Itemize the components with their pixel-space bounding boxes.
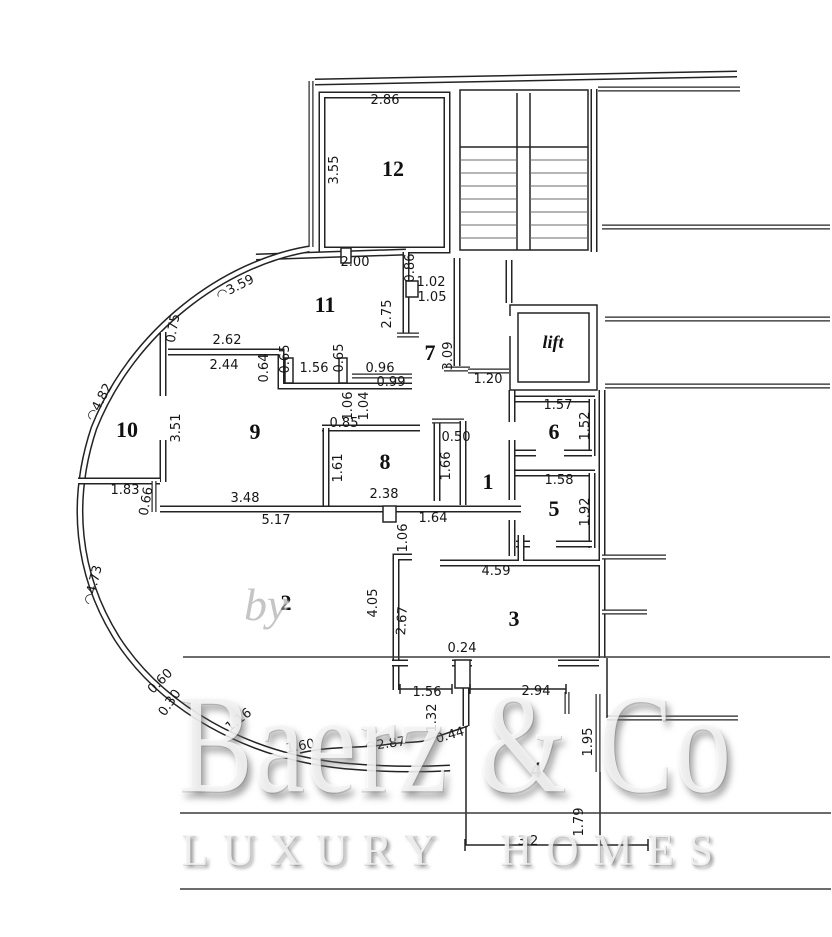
dimension-label: 2.38 (370, 487, 399, 502)
room-label: 7 (425, 340, 436, 365)
dimension-label: 3.55 (327, 156, 342, 185)
dimension-label: 3.09 (441, 342, 456, 371)
room-label: 6 (549, 419, 560, 444)
floor-plan-drawing: 2.863.552.000.861.021.05◠3.592.750.752.6… (0, 0, 832, 937)
dimension-label: 0.66 (137, 486, 157, 517)
door-gaps (163, 398, 564, 669)
dimension-label: 0.65 (332, 344, 347, 373)
floor-plan-page: 2.863.552.000.861.021.05◠3.592.750.752.6… (0, 0, 832, 937)
room-label: 3 (509, 606, 520, 631)
room-label: 9 (250, 419, 261, 444)
dimension-label: 1.64 (419, 511, 448, 526)
dimension-label: 1.20 (474, 372, 503, 387)
dimension-label: 0.85 (330, 416, 359, 431)
dimension-label: 1.52 (578, 412, 593, 441)
dimension-label: 1.95 (581, 728, 596, 757)
dimension-label: 2.86 (371, 93, 400, 108)
dimension-label: 1.56 (300, 361, 329, 376)
dimension-label: ◠4.82 (84, 381, 116, 424)
room-label: 5 (549, 496, 560, 521)
dimension-label: 1.04 (357, 392, 372, 421)
dimension-label: 1.32 (425, 704, 440, 733)
room-label: 11 (315, 292, 336, 317)
staircase (460, 90, 588, 250)
dimension-label: 2.94 (522, 684, 551, 699)
dimension-label: 1.05 (418, 290, 447, 305)
dimension-label: 1.60 (285, 737, 316, 757)
dimension-label: 0.99 (377, 375, 406, 390)
dimension-label: 1.56 (413, 685, 442, 700)
dimension-label: 2.62 (213, 333, 242, 348)
dimension-label: 3.51 (169, 414, 184, 443)
dimension-label: 1.92 (578, 498, 593, 527)
room-label: 4 (531, 757, 542, 782)
dimension-label: 1.66 (439, 452, 454, 481)
room-label: 2 (281, 590, 292, 615)
dimension-label: 2.00 (341, 255, 370, 270)
dimension-label: 2.67 (394, 606, 411, 636)
room-label: lift (543, 332, 565, 352)
room-label: 12 (382, 156, 404, 181)
dimension-label: 1.58 (545, 473, 574, 488)
dimension-label: 0.75 (164, 313, 184, 344)
dimension-label: 3.2 (518, 834, 539, 849)
room-label: 8 (380, 449, 391, 474)
dimension-label: 4.59 (482, 564, 511, 579)
dimension-label: 2.44 (210, 358, 239, 373)
dimension-label: 1.79 (572, 808, 587, 837)
dimension-label: 3.48 (231, 491, 260, 506)
dimension-label: 1.61 (331, 454, 346, 483)
dimension-label: 2.75 (380, 300, 395, 329)
room-label: 1 (483, 469, 494, 494)
dimension-label: 0.64 (257, 354, 272, 383)
dimension-label: 1.16 (223, 705, 255, 735)
dimension-label: 0.50 (442, 430, 471, 445)
dimension-label: 5.17 (262, 513, 291, 528)
walls (78, 74, 830, 772)
watermark-rules (180, 657, 831, 889)
dimension-label: 4.05 (366, 589, 381, 618)
dimension-label: 0.96 (366, 361, 395, 376)
dimension-label: 1.06 (396, 524, 411, 553)
dimension-label: ◠2.87 (365, 734, 407, 754)
dimension-label: 1.57 (544, 398, 573, 413)
dimension-label: 0.24 (448, 641, 477, 656)
dimension-label: 0.65 (278, 345, 293, 374)
dimension-label: 1.02 (417, 275, 446, 290)
dimension-label: 1.83 (111, 483, 140, 498)
room-label: 10 (116, 417, 138, 442)
